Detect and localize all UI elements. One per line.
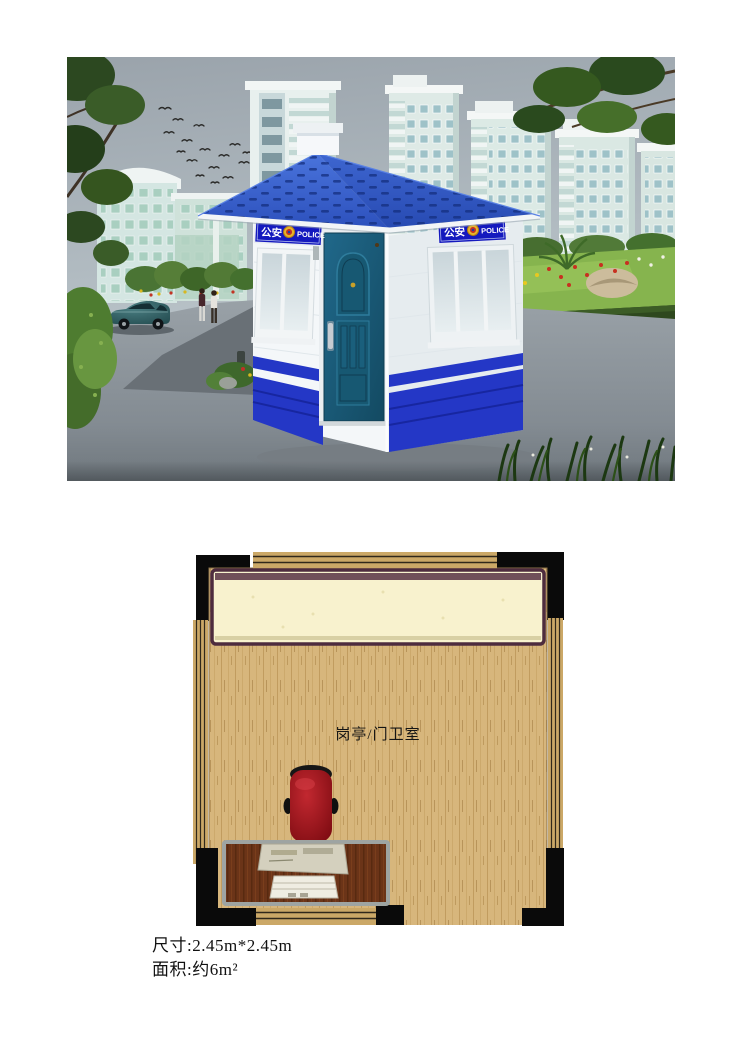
door-keyhole	[351, 283, 356, 288]
sign-left-cn: 公安	[261, 226, 283, 240]
door-opening	[404, 904, 522, 925]
floor-plan: 岗亭/门卫室	[193, 552, 564, 928]
police-badge-icon	[283, 226, 295, 238]
counter-desk	[212, 570, 544, 644]
spec-text: 尺寸:2.45m*2.45m 面积:约6m²	[152, 934, 292, 982]
window-band-bottom	[256, 908, 376, 925]
booth-exterior-rendering: 公安 POLICE 公安 POLICE	[67, 57, 675, 481]
sign-right-en: POLICE	[481, 225, 509, 235]
area-line: 面积:约6m²	[152, 958, 292, 982]
booth-window-right	[424, 244, 519, 348]
dimensions-line: 尺寸:2.45m*2.45m	[152, 934, 292, 958]
roof-cap	[293, 123, 343, 155]
room-label: 岗亭/门卫室	[335, 725, 420, 743]
wall-pier	[376, 905, 404, 925]
booth-door	[319, 228, 389, 426]
work-desk	[224, 842, 388, 904]
window-band-top	[253, 552, 497, 569]
window-band-right	[548, 618, 563, 852]
document-page: 公安 POLICE 公安 POLICE	[0, 0, 745, 1053]
sign-left-en: POLICE	[297, 229, 325, 239]
window-band-left	[193, 620, 208, 864]
booth-window-left	[251, 248, 318, 345]
